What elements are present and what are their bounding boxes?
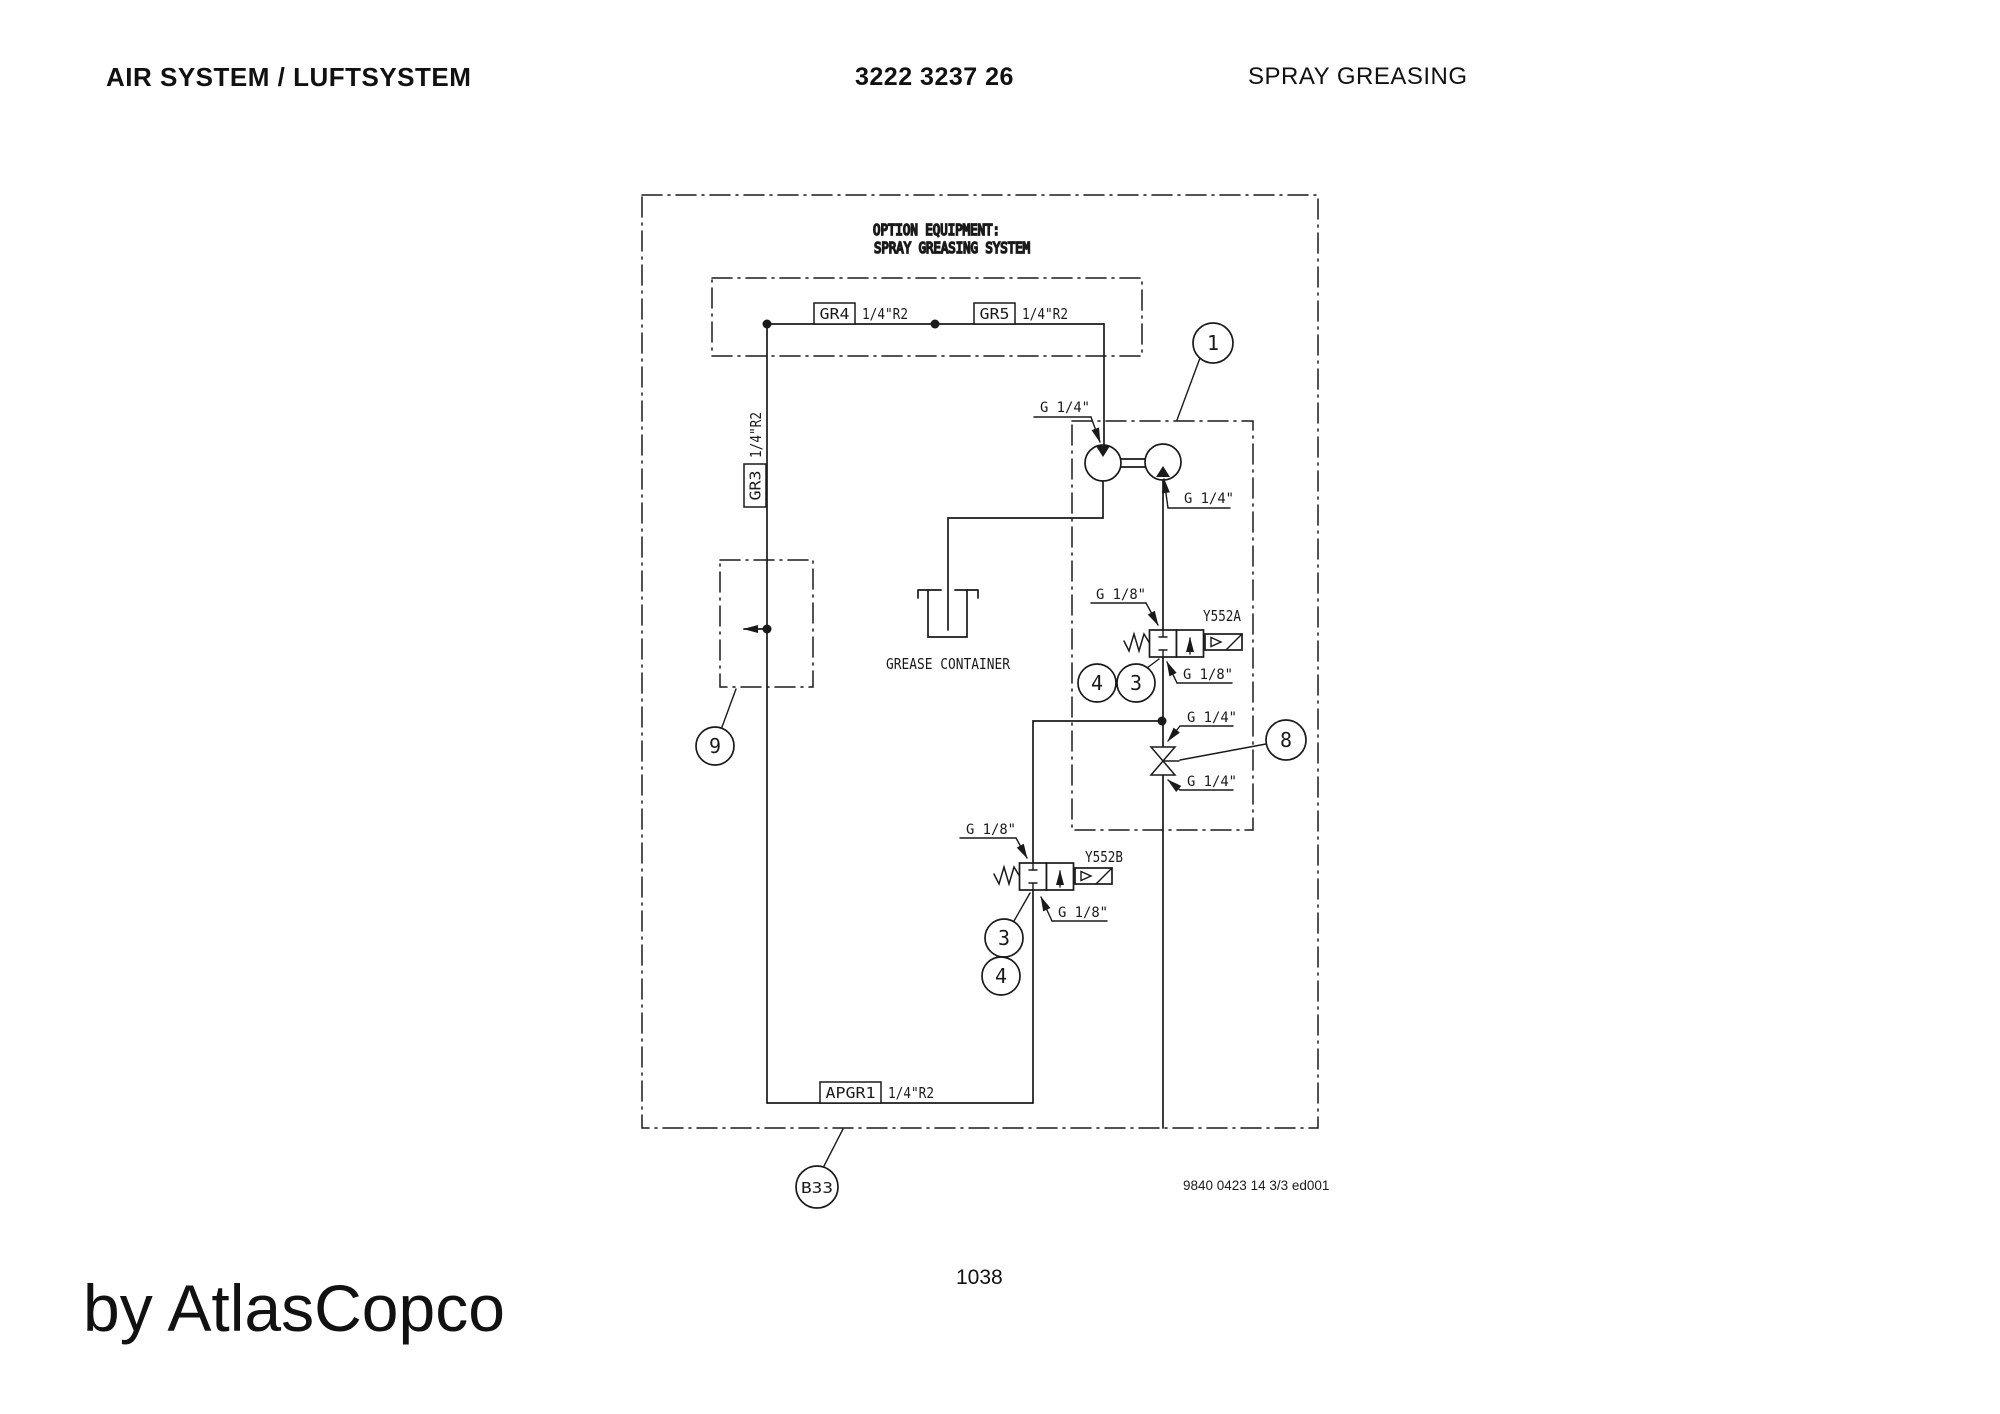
tag-gr5-size: 1/4"R2: [1022, 305, 1068, 323]
option-title-line1: OPTION EQUIPMENT:: [873, 221, 1000, 239]
pump-unit: [1085, 444, 1181, 481]
junction-dot: [1158, 717, 1167, 726]
port-label-ya-bottom: G 1/8": [1167, 662, 1233, 683]
svg-text:4: 4: [1091, 671, 1103, 695]
port-label-pump-out: G 1/4": [1164, 479, 1234, 508]
tag-gr4: GR4 1/4"R2: [814, 303, 908, 324]
port-label-check-bottom: G 1/4": [1168, 774, 1237, 790]
svg-text:G 1/8": G 1/8": [1096, 587, 1146, 603]
svg-text:G 1/4": G 1/4": [1187, 774, 1237, 790]
tag-gr4-size: 1/4"R2: [862, 305, 908, 323]
svg-text:8: 8: [1280, 728, 1292, 752]
callout-yb-4: 4: [982, 957, 1020, 995]
callout-1: 1: [1177, 323, 1233, 420]
port-label-tee: G 1/4": [1168, 710, 1237, 741]
valve-spring: [994, 867, 1020, 884]
svg-text:G 1/4": G 1/4": [1187, 710, 1237, 726]
tag-gr5: GR5 1/4"R2: [974, 303, 1068, 324]
tag-gr4-label: GR4: [820, 305, 850, 323]
callout-ya-3: 3: [1117, 659, 1159, 702]
svg-text:G 1/4": G 1/4": [1184, 491, 1234, 507]
piping: [763, 320, 1167, 1129]
junction-dot: [763, 320, 772, 329]
svg-text:G 1/8": G 1/8": [966, 822, 1016, 838]
svg-text:G 1/4": G 1/4": [1040, 400, 1090, 416]
brand-watermark: by AtlasCopco: [83, 1270, 505, 1346]
tag-apgr1: APGR1 1/4"R2: [820, 1082, 934, 1103]
callout-yb-3: 3: [985, 893, 1030, 957]
svg-text:G 1/8": G 1/8": [1058, 905, 1108, 921]
svg-text:4: 4: [995, 964, 1007, 988]
page-number: 1038: [956, 1266, 1003, 1290]
valve-y552a-label: Y552A: [1203, 607, 1241, 625]
tag-gr3-label: GR3: [747, 471, 765, 501]
port-label-yb-bottom: G 1/8": [1041, 897, 1108, 921]
valve-y552b: Y552B: [994, 848, 1123, 890]
callout-ya-4: 4: [1078, 664, 1116, 702]
tag-gr3: GR3 1/4"R2: [744, 412, 766, 507]
svg-text:G 1/8": G 1/8": [1183, 667, 1233, 683]
svg-text:3: 3: [1130, 671, 1142, 695]
drawing-reference: 9840 0423 14 3/3 ed001: [1183, 1178, 1329, 1193]
tag-gr3-size: 1/4"R2: [747, 412, 765, 458]
svg-text:B33: B33: [801, 1179, 833, 1197]
svg-text:9: 9: [709, 734, 721, 758]
pump-coupling: [1121, 459, 1145, 467]
tag-apgr1-size: 1/4"R2: [888, 1084, 934, 1102]
port-label-yb-top: G 1/8": [960, 822, 1027, 858]
valve-y552b-label: Y552B: [1085, 848, 1123, 866]
svg-text:3: 3: [998, 926, 1010, 950]
pneumatic-schematic: OPTION EQUIPMENT: SPRAY GREASING SYSTEM …: [0, 0, 2000, 1414]
callout-9: 9: [696, 689, 736, 765]
check-valve: [1151, 747, 1179, 775]
junction-dot: [931, 320, 940, 329]
port-label-ya-top: G 1/8": [1091, 587, 1158, 625]
grease-container-label: GREASE CONTAINER: [886, 655, 1011, 673]
tag-gr5-label: GR5: [980, 305, 1010, 323]
tag-apgr1-label: APGR1: [826, 1084, 876, 1102]
valve-y552a: Y552A: [1124, 607, 1242, 657]
grease-bus-boundary: [712, 278, 1142, 356]
valve-spring: [1124, 634, 1150, 651]
callout-b33: B33: [796, 1129, 843, 1208]
option-title-line2: SPRAY GREASING SYSTEM: [874, 239, 1030, 257]
svg-text:1: 1: [1207, 331, 1219, 355]
